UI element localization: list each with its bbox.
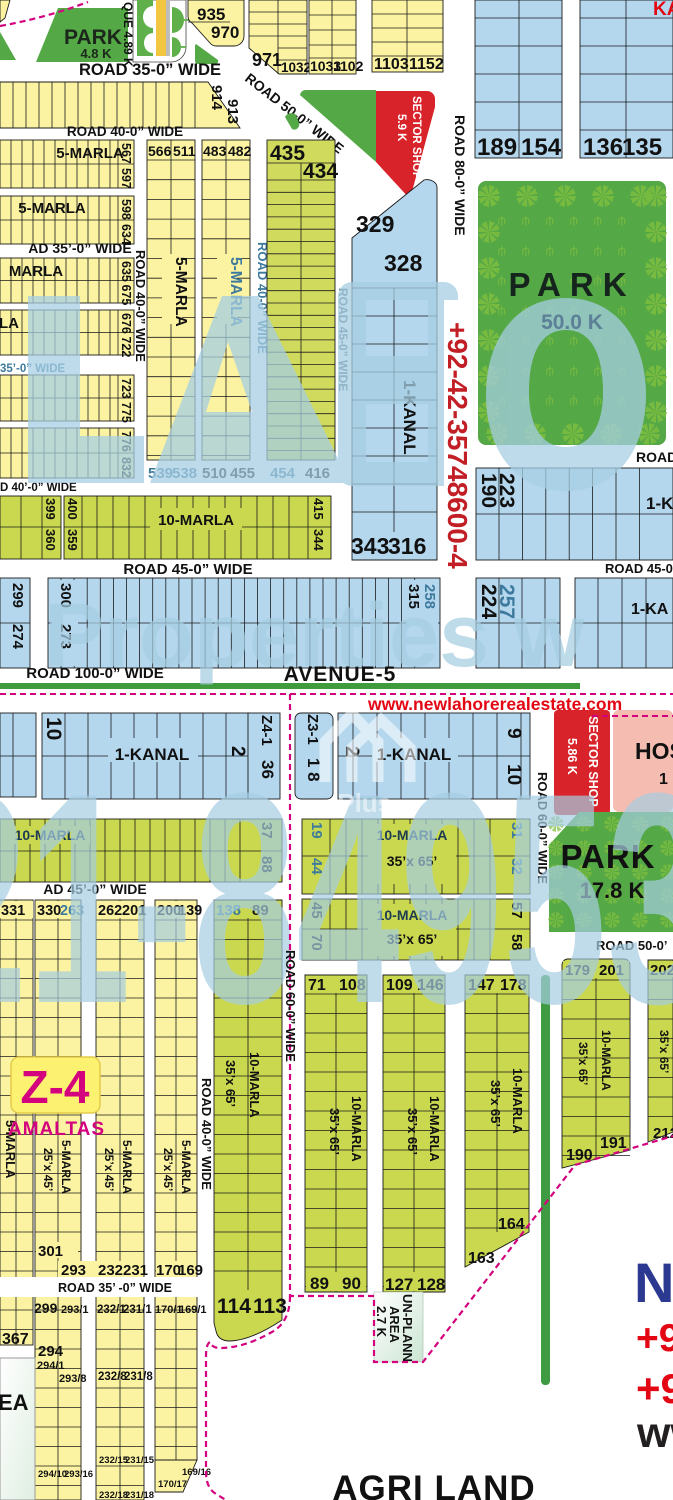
svg-text:EA: EA <box>0 1390 29 1415</box>
svg-text:914: 914 <box>208 85 225 111</box>
svg-text:NE: NE <box>634 1251 673 1314</box>
svg-text:ψ: ψ <box>569 245 578 259</box>
svg-text:231/18: 231/18 <box>125 1490 154 1500</box>
svg-text:274: 274 <box>9 624 26 650</box>
svg-text:316: 316 <box>388 533 426 559</box>
svg-text:ψ: ψ <box>593 245 602 259</box>
svg-text:QUE 4.89 K: QUE 4.89 K <box>121 2 135 67</box>
svg-text:293/8: 293/8 <box>59 1373 87 1385</box>
svg-text:1-KA: 1-KA <box>631 601 669 618</box>
svg-text:299: 299 <box>34 1300 58 1316</box>
svg-text:21-84953: 21-84953 <box>0 730 673 1065</box>
svg-text:1032: 1032 <box>281 60 311 75</box>
svg-text:SECTOR SHOP: SECTOR SHOP <box>410 96 422 180</box>
svg-text:+9: +9 <box>636 1317 673 1360</box>
svg-text:ψ: ψ <box>569 395 578 409</box>
svg-text:ψ: ψ <box>569 365 578 379</box>
svg-text:5-MARLA: 5-MARLA <box>179 1140 193 1194</box>
svg-text:ψ: ψ <box>545 335 554 349</box>
svg-text:231/15: 231/15 <box>125 1455 155 1466</box>
svg-text:10-MARLA: 10-MARLA <box>349 1096 364 1162</box>
svg-text:35’x 65’: 35’x 65’ <box>488 1080 503 1127</box>
svg-text:ψ: ψ <box>521 215 530 229</box>
svg-text:293: 293 <box>61 1262 86 1279</box>
svg-text:232/1: 232/1 <box>97 1304 126 1316</box>
svg-text:913: 913 <box>224 99 241 124</box>
svg-text:232/8: 232/8 <box>98 1371 127 1383</box>
svg-text:ψ: ψ <box>593 365 602 379</box>
svg-text:400: 400 <box>65 498 80 520</box>
svg-text:294/1: 294/1 <box>37 1360 65 1372</box>
svg-text:511: 511 <box>173 143 196 159</box>
svg-text:35’x 65’: 35’x 65’ <box>223 1060 238 1107</box>
svg-text:775: 775 <box>119 402 133 423</box>
svg-text:1-K: 1-K <box>646 494 673 513</box>
svg-text:35’x 65’: 35’x 65’ <box>327 1108 342 1155</box>
svg-text:113: 113 <box>253 1295 287 1318</box>
svg-text:163: 163 <box>468 1250 495 1267</box>
svg-text:+9: +9 <box>636 1365 673 1412</box>
svg-text:435: 435 <box>270 142 305 165</box>
svg-text:169/1: 169/1 <box>179 1304 207 1316</box>
svg-text:127: 127 <box>385 1275 413 1294</box>
svg-text:415: 415 <box>311 498 326 520</box>
svg-text:ψ: ψ <box>617 305 626 319</box>
svg-text:5-MARLA: 5-MARLA <box>59 1140 73 1194</box>
svg-text:+92-42-35748600-4: +92-42-35748600-4 <box>442 322 473 569</box>
svg-text:5-MARLA: 5-MARLA <box>172 257 189 327</box>
svg-text:ψ: ψ <box>593 215 602 229</box>
svg-text:970: 970 <box>211 23 239 42</box>
svg-text:722: 722 <box>119 337 133 358</box>
svg-text:434: 434 <box>303 160 338 183</box>
svg-text:ψ: ψ <box>497 215 506 229</box>
svg-text:5-MARLA: 5-MARLA <box>120 1140 134 1194</box>
svg-text:35’x 65’: 35’x 65’ <box>405 1108 420 1155</box>
svg-text:PARK: PARK <box>508 266 635 303</box>
svg-text:ψ: ψ <box>497 245 506 259</box>
svg-text:935: 935 <box>197 5 225 24</box>
svg-text:25’x 45’: 25’x 45’ <box>41 1148 55 1191</box>
svg-text:www.newlahorerealestate.com: www.newlahorerealestate.com <box>367 694 622 714</box>
svg-text:483: 483 <box>203 143 227 159</box>
svg-text:Z-4: Z-4 <box>21 1061 90 1113</box>
svg-text:ψ: ψ <box>617 215 626 229</box>
svg-text:1103: 1103 <box>374 56 409 73</box>
svg-text:ψ: ψ <box>617 245 626 259</box>
svg-text:ROAD 40-0” WIDE: ROAD 40-0” WIDE <box>67 124 183 139</box>
svg-text:597: 597 <box>119 168 133 189</box>
svg-text:ROAD 45-0: ROAD 45-0 <box>605 561 673 576</box>
svg-text:231/1: 231/1 <box>123 1304 152 1316</box>
svg-text:232/18: 232/18 <box>99 1490 128 1500</box>
svg-text:89: 89 <box>310 1274 329 1293</box>
svg-text:1152: 1152 <box>409 56 444 73</box>
svg-text:293/16: 293/16 <box>64 1469 93 1480</box>
svg-text:170/17: 170/17 <box>158 1479 187 1490</box>
svg-text:328: 328 <box>384 250 423 276</box>
svg-text:ww: ww <box>636 1409 673 1457</box>
svg-text:135: 135 <box>622 134 662 161</box>
svg-text:5.9 K: 5.9 K <box>395 114 407 142</box>
svg-text:ψ: ψ <box>593 395 602 409</box>
svg-text:232: 232 <box>98 1262 123 1279</box>
svg-text:5-MARLA: 5-MARLA <box>56 145 124 162</box>
svg-text:ROAD 40-0” WIDE: ROAD 40-0” WIDE <box>133 250 148 362</box>
svg-text:ψ: ψ <box>545 395 554 409</box>
svg-text:299: 299 <box>9 583 26 608</box>
svg-text:ROAD 40-0” WIDE: ROAD 40-0” WIDE <box>199 1078 214 1190</box>
svg-text:971: 971 <box>252 50 282 70</box>
svg-text:399: 399 <box>43 498 58 520</box>
svg-text:MARLA: MARLA <box>9 263 63 280</box>
svg-text:AGRI LAND: AGRI LAND <box>332 1469 535 1500</box>
svg-text:.Plus: .Plus <box>330 788 392 818</box>
svg-text:367: 367 <box>2 1331 29 1348</box>
svg-text:598: 598 <box>119 199 133 220</box>
svg-text:231/8: 231/8 <box>124 1371 153 1383</box>
svg-text:AD 35’-0” WIDE: AD 35’-0” WIDE <box>28 240 131 256</box>
svg-text:154: 154 <box>521 134 562 161</box>
svg-text:169: 169 <box>178 1262 203 1279</box>
svg-text:5-MARLA: 5-MARLA <box>18 200 86 217</box>
svg-text:4.8 K: 4.8 K <box>80 46 112 61</box>
svg-text:ψ: ψ <box>569 335 578 349</box>
svg-text:301: 301 <box>38 1243 63 1260</box>
svg-text:482: 482 <box>228 143 252 159</box>
svg-text:231: 231 <box>123 1262 148 1279</box>
svg-text:25’x 45’: 25’x 45’ <box>102 1148 116 1191</box>
svg-text:ROAD 80-0” WIDE: ROAD 80-0” WIDE <box>452 115 468 236</box>
svg-text:ψ: ψ <box>521 245 530 259</box>
svg-text:360: 360 <box>43 529 58 551</box>
svg-text:164: 164 <box>498 1216 525 1233</box>
svg-text:KA: KA <box>653 0 673 20</box>
svg-text:Properties w: Properties w <box>44 586 585 686</box>
svg-text:294/10: 294/10 <box>38 1469 67 1480</box>
svg-text:AMALTAS: AMALTAS <box>8 1119 105 1140</box>
svg-text:D 40’-0” WIDE: D 40’-0” WIDE <box>0 482 77 494</box>
svg-text:344: 344 <box>311 529 326 551</box>
svg-text:189: 189 <box>477 134 517 161</box>
svg-text:676: 676 <box>119 313 133 334</box>
svg-text:294: 294 <box>38 1343 64 1360</box>
svg-text:ROAD 45-0” WIDE: ROAD 45-0” WIDE <box>123 561 252 578</box>
svg-text:ψ: ψ <box>545 365 554 379</box>
svg-text:10-MARLA: 10-MARLA <box>510 1068 525 1134</box>
svg-text:10-MARLA: 10-MARLA <box>427 1096 442 1162</box>
svg-text:1102: 1102 <box>333 58 364 74</box>
svg-text:ROAD 35’ -0” WIDE: ROAD 35’ -0” WIDE <box>58 1281 172 1295</box>
svg-text:128: 128 <box>417 1275 445 1294</box>
svg-text:ψ: ψ <box>497 275 506 289</box>
svg-text:ψ: ψ <box>545 245 554 259</box>
svg-text:114: 114 <box>217 1295 251 1318</box>
svg-text:ROAD 60-0” WIDE: ROAD 60-0” WIDE <box>283 950 298 1062</box>
svg-text:293/1: 293/1 <box>61 1304 89 1316</box>
svg-text:2.7 K: 2.7 K <box>374 1306 389 1338</box>
svg-text:10-MARLA: 10-MARLA <box>158 512 234 529</box>
svg-text:ROAD 35-0” WIDE: ROAD 35-0” WIDE <box>79 61 221 79</box>
svg-text:223: 223 <box>495 473 518 508</box>
svg-text:ψ: ψ <box>497 305 506 319</box>
svg-text:566: 566 <box>148 143 172 159</box>
svg-text:343: 343 <box>351 533 389 559</box>
svg-text:50.0 K: 50.0 K <box>541 311 603 334</box>
svg-text:25’x 45’: 25’x 45’ <box>161 1148 175 1191</box>
svg-text:723: 723 <box>119 378 133 399</box>
svg-text:329: 329 <box>356 211 394 237</box>
svg-text:90: 90 <box>342 1274 361 1293</box>
svg-text:675: 675 <box>119 285 133 306</box>
svg-text:LA: LA <box>0 315 19 332</box>
svg-text:ψ: ψ <box>569 215 578 229</box>
svg-text:136: 136 <box>583 134 623 161</box>
svg-text:191: 191 <box>600 1135 627 1152</box>
svg-text:359: 359 <box>65 529 80 551</box>
svg-text:ROAD: ROAD <box>636 449 673 465</box>
svg-text:635: 635 <box>119 261 133 282</box>
svg-text:ψ: ψ <box>545 215 554 229</box>
